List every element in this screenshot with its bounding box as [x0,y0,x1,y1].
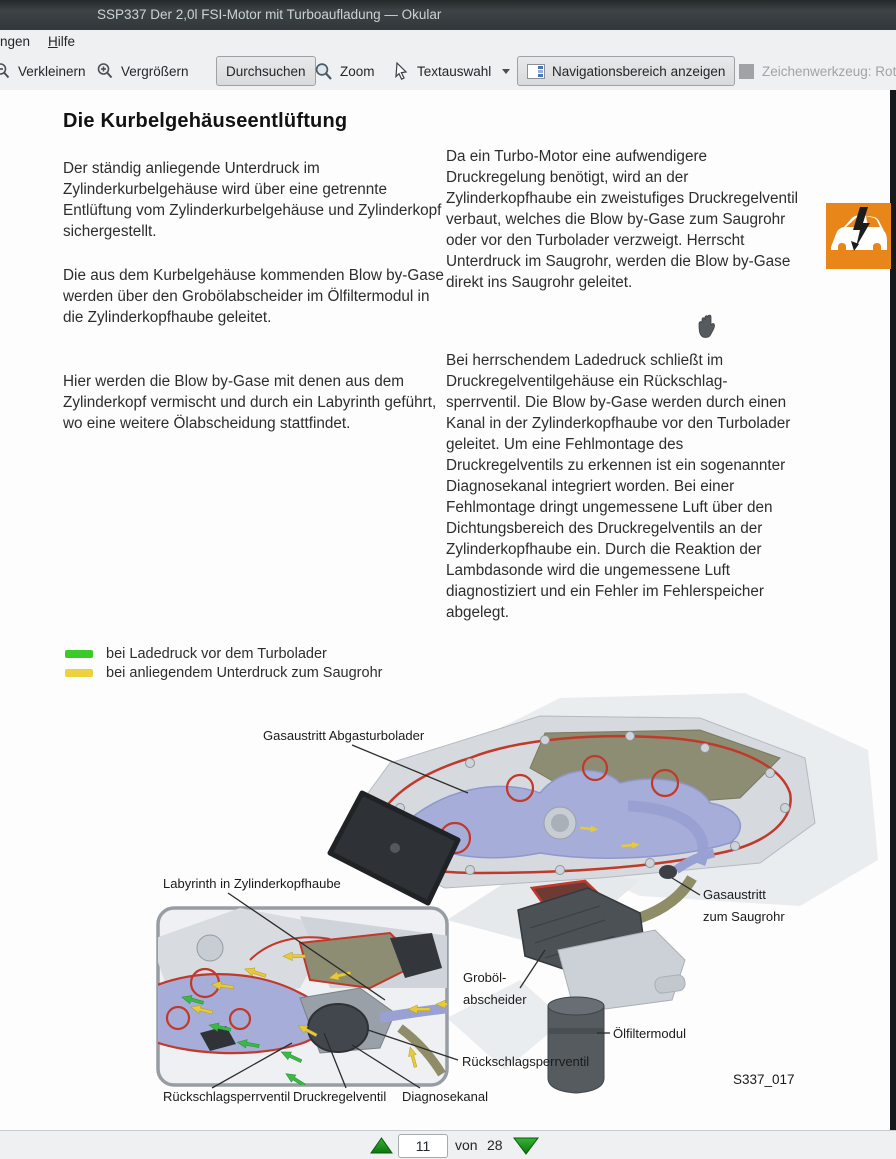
toolbar: Verkleinern Vergrößern Durchsuchen Zoom … [0,52,896,91]
nav-panel-toggle-button[interactable]: Navigationsbereich anzeigen [517,56,735,86]
label-oil-filter-module: Ölfiltermodul [613,1026,686,1041]
text-select-label: Textauswahl [417,64,491,79]
detail-inset-box [150,908,458,1089]
text-select-button[interactable]: Textauswahl [393,56,510,86]
label-check-valve-right: Rückschlagsperrventil [462,1054,589,1069]
paragraph-right-2: Bei herrschendem Ladedruck schließt im D… [446,350,800,623]
zoom-in-button[interactable]: Vergrößern [96,56,189,86]
pressure-valve-diaphragm [308,1004,368,1052]
sidebar-panel-icon [527,64,545,79]
zoom-in-label: Vergrößern [121,64,189,79]
window-title: SSP337 Der 2,0l FSI-Motor mit Turboaufla… [97,7,441,22]
engine-figure: Gasaustritt Abgasturbolader Labyrinth in… [0,688,896,1130]
zoom-out-button[interactable]: Verkleinern [0,56,86,86]
zoom-tool-button[interactable]: Zoom [314,56,375,86]
label-pressure-valve: Druckregelventil [293,1089,386,1104]
paragraph-left-1: Der ständig anliegende Unterdruck im Zyl… [63,158,451,242]
zoom-tool-label: Zoom [340,64,375,79]
page-total: 28 [487,1137,503,1153]
label-gas-outlet-intake-1: Gasaustritt [703,887,766,902]
paragraph-right-1: Da ein Turbo-Motor eine aufwendigere Dru… [446,146,800,293]
nav-panel-label: Navigationsbereich anzeigen [552,64,725,79]
menu-help-accel: H [48,34,58,49]
legend-label-green: bei Ladedruck vor dem Turbolader [106,646,327,662]
magnifier-minus-icon [0,62,11,80]
legend-swatch-yellow [65,669,93,677]
menu-help-rest: ilfe [58,34,75,49]
electric-car-warning-icon [826,203,891,269]
page-of-label: von [455,1137,478,1153]
legend-swatch-green [65,650,93,658]
label-labyrinth: Labyrinth in Zylinderkopfhaube [163,876,341,891]
hand-cursor-icon [694,312,718,338]
label-check-valve-left: Rückschlagsperrventil [163,1089,290,1104]
page-number-input[interactable] [398,1134,448,1158]
draw-tool-label: Zeichenwerkzeug: Rot [762,64,896,79]
paragraph-left-2: Die aus dem Kurbelgehäuse kommenden Blow… [63,265,451,328]
menu-settings-partial[interactable]: ngen [0,32,34,51]
magnifier-plus-icon [96,62,114,80]
previous-page-button[interactable] [370,1137,393,1154]
statusbar: von 28 [0,1130,896,1159]
paragraph-left-3: Hier werden die Blow by-Gase mit denen a… [63,371,451,434]
label-oil-separator-2: abscheider [463,992,527,1007]
label-gas-outlet-intake-2: zum Saugrohr [703,909,785,924]
figure-id: S337_017 [733,1072,795,1087]
draw-tool-icon [738,63,755,80]
zoom-out-label: Verkleinern [18,64,86,79]
label-oil-separator-1: Groböl- [463,970,506,985]
page-title: Die Kurbelgehäuseentlüftung [63,110,347,133]
label-diagnostic-channel: Diagnosekanal [402,1089,488,1104]
window-titlebar[interactable]: SSP337 Der 2,0l FSI-Motor mit Turboaufla… [0,0,896,30]
magnifier-icon [314,62,333,81]
chevron-down-icon[interactable] [502,69,510,74]
menubar: ngen Hilfe [0,30,896,52]
next-page-button[interactable] [513,1137,539,1155]
legend-label-yellow: bei anliegendem Unterdruck zum Saugrohr [106,665,382,681]
menu-help[interactable]: Hilfe [44,32,79,51]
browse-mode-label: Durchsuchen [226,64,306,79]
draw-tool-button: Zeichenwerkzeug: Rot [738,56,896,86]
label-gas-outlet-turbo: Gasaustritt Abgasturbolader [263,728,424,743]
browse-mode-button[interactable]: Durchsuchen [216,56,316,86]
cursor-arrow-icon [393,62,410,81]
